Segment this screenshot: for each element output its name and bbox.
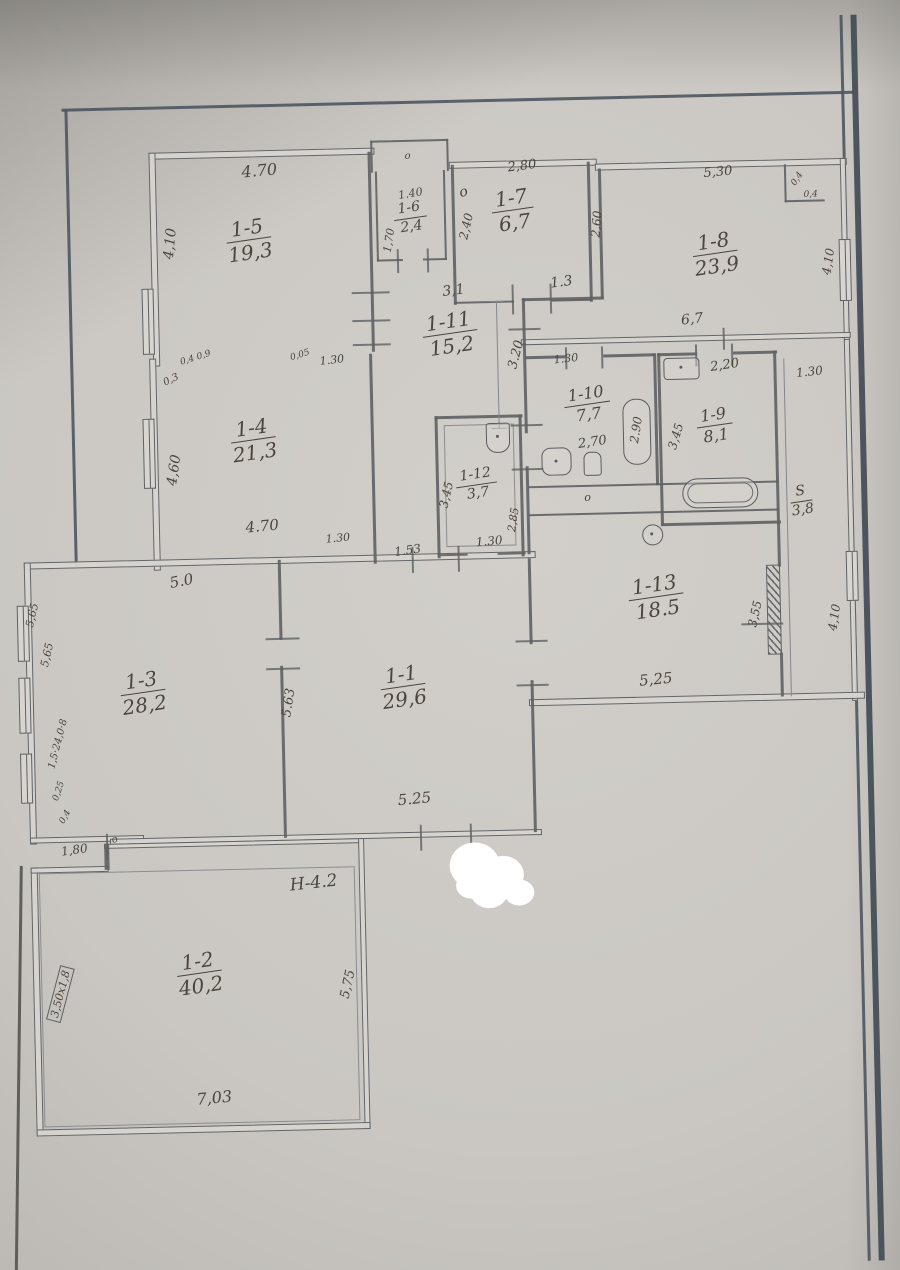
room-area: 23,9 [693,251,740,281]
wall [526,466,530,554]
dim-label: 4.70 [245,516,280,537]
dim-label: 5,65 [38,641,56,668]
dim-label: 1.30 [475,533,503,549]
dim-label: 2,20 [709,356,740,375]
wall [773,351,780,567]
dim-label: 2,85 [505,507,522,533]
toilet-dot [554,460,557,463]
door-tick [601,346,603,368]
wall [375,172,379,262]
room-area: 28,2 [121,690,168,720]
wall [148,148,374,160]
wall [603,353,655,357]
circle-mark: о [457,183,470,201]
dim-label: 4,10 [161,227,180,260]
window-symbol [18,678,31,734]
dim-label: 0,4 0,9 [179,349,212,368]
window-symbol [142,419,156,489]
dim-label: 5.63 [279,687,298,718]
dim-label: 1,70 [381,227,398,253]
room-label-s: S3,8 [788,483,815,520]
door-tick [516,640,548,643]
dim-label: 0,05 [289,348,311,364]
dim-label: 4,60 [164,454,185,487]
room-label-1-8: 1-823,9 [690,227,741,281]
window-symbol [839,239,852,301]
dim-label: 5.25 [397,788,432,809]
room-label-1-10: 1-107,7 [562,382,613,427]
wall [518,414,524,556]
wall [370,139,448,143]
sink-dot [679,366,682,369]
door-tick [511,424,543,427]
window-symbol [20,754,33,804]
wall [522,298,526,345]
door-tick [512,468,544,471]
room-label-1-11: 1-1115,2 [419,306,480,361]
wall [528,558,532,644]
room-area: 6,7 [492,208,537,237]
measure-line [496,301,500,429]
wall [369,354,376,564]
room-label-1-12: 1-123,7 [454,465,500,505]
dim-label: 7,03 [196,1087,233,1109]
circle-mark: о [584,491,591,504]
door-tick [457,546,460,572]
wall [377,259,403,262]
circle-mark: о [404,151,410,162]
room-area: 19,3 [227,238,274,268]
dim-label: 1.3 [549,273,573,292]
page-frame-left [64,111,77,567]
dim-label: 5.0 [168,570,195,592]
whiteout-blob [449,842,500,889]
scanned-floor-plan-photo: 1-519,3 1-62,4 1-76,7 1-823,9 1-1115,2 1… [0,0,900,1270]
room-label-1-6: 1-62,4 [392,199,429,238]
dim-label: 1.30 [325,531,351,546]
dim-label: 1,80 [60,841,88,859]
wall [278,560,282,640]
room-area: 8,1 [697,423,735,447]
washbasin-symbol [486,423,511,454]
wall [784,164,787,202]
dim-label: 3,1 [441,281,465,300]
dim-label: 1.30 [795,363,823,380]
dim-label: 0,25 [51,780,67,802]
wall-inner-line [783,358,792,696]
wall [370,141,373,173]
dim-label: 1,5·24,0·8 [46,718,70,770]
door-tick [352,319,390,322]
bathtub-inner-line [687,482,753,503]
wall [529,509,779,517]
room-label-1-3: 1-328,2 [117,666,168,720]
dim-label: 0,4 [789,170,805,187]
dim-label: 3,45 [665,421,686,451]
paper-edge-line [15,866,23,1270]
wall [434,416,440,558]
room-label-1-9: 1-98,1 [694,404,735,448]
window-symbol [846,551,859,601]
room-label-1-5: 1-519,3 [223,214,274,268]
wall [358,838,371,1128]
wall [657,353,663,525]
window-symbol [142,289,155,355]
dim-label: 0,3 [162,372,181,389]
door-tick [723,328,725,350]
dim-label: 2,70 [577,433,608,452]
door-tick [353,343,391,346]
dim-label: 1.30 [553,351,579,367]
room-area: 29,6 [381,684,428,714]
room-area: 2,4 [394,216,429,237]
room-area: 3,8 [791,500,815,520]
door-tick [517,684,549,687]
door-tick [427,248,430,272]
door-tick [397,249,400,273]
room-area: 21,3 [231,438,278,468]
room-label-1-1: 1-129,6 [377,660,428,714]
dim-label: 2,60 [588,210,604,238]
room-label-1-13: 1-1318.5 [625,570,686,625]
door-tick [512,284,515,314]
dim-label: 2,80 [507,157,538,176]
door-tick [266,667,300,670]
wall [454,300,514,303]
door-tick [420,825,423,851]
dim-label: 2,40 [456,212,476,241]
boiler-dot [650,532,653,535]
sink-symbol [663,357,699,380]
wall [434,414,522,418]
dim-label: 4,10 [825,603,843,632]
wall [529,692,865,707]
page-frame-top [61,91,853,111]
room-label-1-2: 1-240,2 [174,947,225,1001]
dim-label: 1.30 [319,352,345,368]
dim-label: 5,25 [638,669,673,690]
door-tick [509,328,541,331]
wall [844,339,858,701]
room-label-1-7: 1-76,7 [489,184,538,237]
dim-label: 0,4 [58,808,74,825]
dim-label: 5,30 [703,163,733,181]
wall [733,351,777,354]
door-tick [352,291,390,294]
dim-label: 0,4 [803,190,818,200]
wall [443,170,447,260]
dim-label: 4,10 [819,247,837,276]
floor-plan-drawing: 1-519,3 1-62,4 1-76,7 1-823,9 1-1115,2 1… [0,0,900,1270]
door-tick [265,637,299,640]
dim-label: 6,7 [680,310,704,328]
dim-label: 4.70 [241,159,278,181]
wall [661,520,781,525]
sink-pedestal-symbol [583,452,602,476]
wall [657,352,697,355]
window-hatch [766,565,782,655]
wall [521,332,851,345]
washbasin-dot [496,435,499,438]
wall [780,652,783,696]
room-label-1-4: 1-421,3 [228,413,279,467]
